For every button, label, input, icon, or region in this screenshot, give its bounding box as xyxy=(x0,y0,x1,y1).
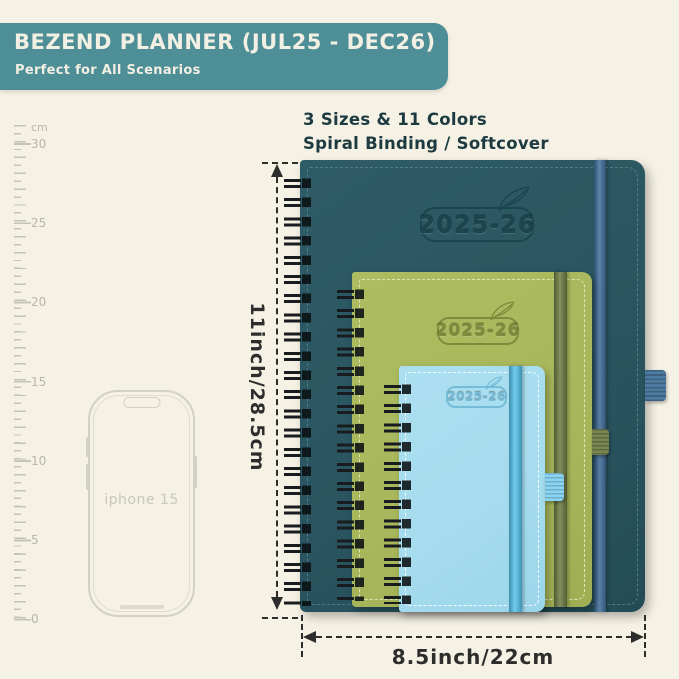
dimension-cap xyxy=(644,615,646,657)
planner-small: 2025-26 xyxy=(399,366,545,612)
ruler-label: 10 xyxy=(31,454,46,468)
spiral-binding xyxy=(337,285,363,601)
home-indicator xyxy=(120,605,164,609)
elastic-band xyxy=(554,272,567,607)
feature-text: 3 Sizes & 11 Colors Spiral Binding / Sof… xyxy=(303,108,549,156)
volume-down-button xyxy=(86,464,89,490)
dynamic-island xyxy=(123,397,160,408)
feature-line-sizes: 3 Sizes & 11 Colors xyxy=(303,108,549,132)
dimension-line xyxy=(276,177,278,597)
arrow-up-icon xyxy=(271,164,283,177)
product-size-infographic: BEZEND PLANNER (JUL25 - DEC26) Perfect f… xyxy=(0,0,679,679)
pen-loop xyxy=(645,370,666,401)
spiral-binding xyxy=(284,174,311,606)
pen-loop xyxy=(545,473,564,501)
year-emboss-frame: 2025-26 xyxy=(420,207,534,242)
volume-up-button xyxy=(86,437,89,457)
page-subtitle: Perfect for All Scenarios xyxy=(15,63,201,78)
ruler-ticks xyxy=(14,143,31,621)
year-emboss-frame: 2025-26 xyxy=(437,317,519,345)
arrow-left-icon xyxy=(303,631,316,643)
elastic-band xyxy=(509,366,522,612)
spiral-wires xyxy=(384,380,401,604)
pen-loop xyxy=(592,429,609,455)
year-emboss: 2025-26 xyxy=(447,390,506,404)
elastic-band xyxy=(594,160,606,612)
arrow-down-icon xyxy=(271,597,283,610)
height-dimension-label: 11inch/28.5cm xyxy=(246,302,268,471)
spiral-holes xyxy=(302,174,311,606)
ruler-label: 30 xyxy=(31,137,46,151)
dimension-line xyxy=(316,636,632,638)
header-banner: BEZEND PLANNER (JUL25 - DEC26) Perfect f… xyxy=(0,23,448,90)
ruler-label: 15 xyxy=(31,375,46,389)
dimension-cap xyxy=(262,617,298,619)
width-dimension-label: 8.5inch/22cm xyxy=(343,645,603,669)
feature-line-binding: Spiral Binding / Softcover xyxy=(303,132,549,156)
ruler-label: 5 xyxy=(31,533,39,547)
phone-label: iphone 15 xyxy=(90,492,193,508)
phone-outline: iphone 15 xyxy=(88,390,195,617)
year-emboss: 2025-26 xyxy=(435,321,520,341)
spiral-binding xyxy=(384,380,410,604)
spiral-holes xyxy=(402,380,411,604)
ruler-label: 0 xyxy=(31,612,39,626)
power-button xyxy=(194,456,197,488)
arrow-right-icon xyxy=(631,631,644,643)
page-title: BEZEND PLANNER (JUL25 - DEC26) xyxy=(14,30,436,54)
ruler-unit-label: cm xyxy=(31,121,48,134)
spiral-wires xyxy=(337,285,354,601)
spiral-wires xyxy=(284,174,301,606)
year-emboss-frame: 2025-26 xyxy=(446,386,507,408)
year-emboss: 2025-26 xyxy=(418,211,535,239)
spiral-holes xyxy=(355,285,364,601)
ruler-label: 20 xyxy=(31,295,46,309)
ruler-label: 25 xyxy=(31,216,46,230)
